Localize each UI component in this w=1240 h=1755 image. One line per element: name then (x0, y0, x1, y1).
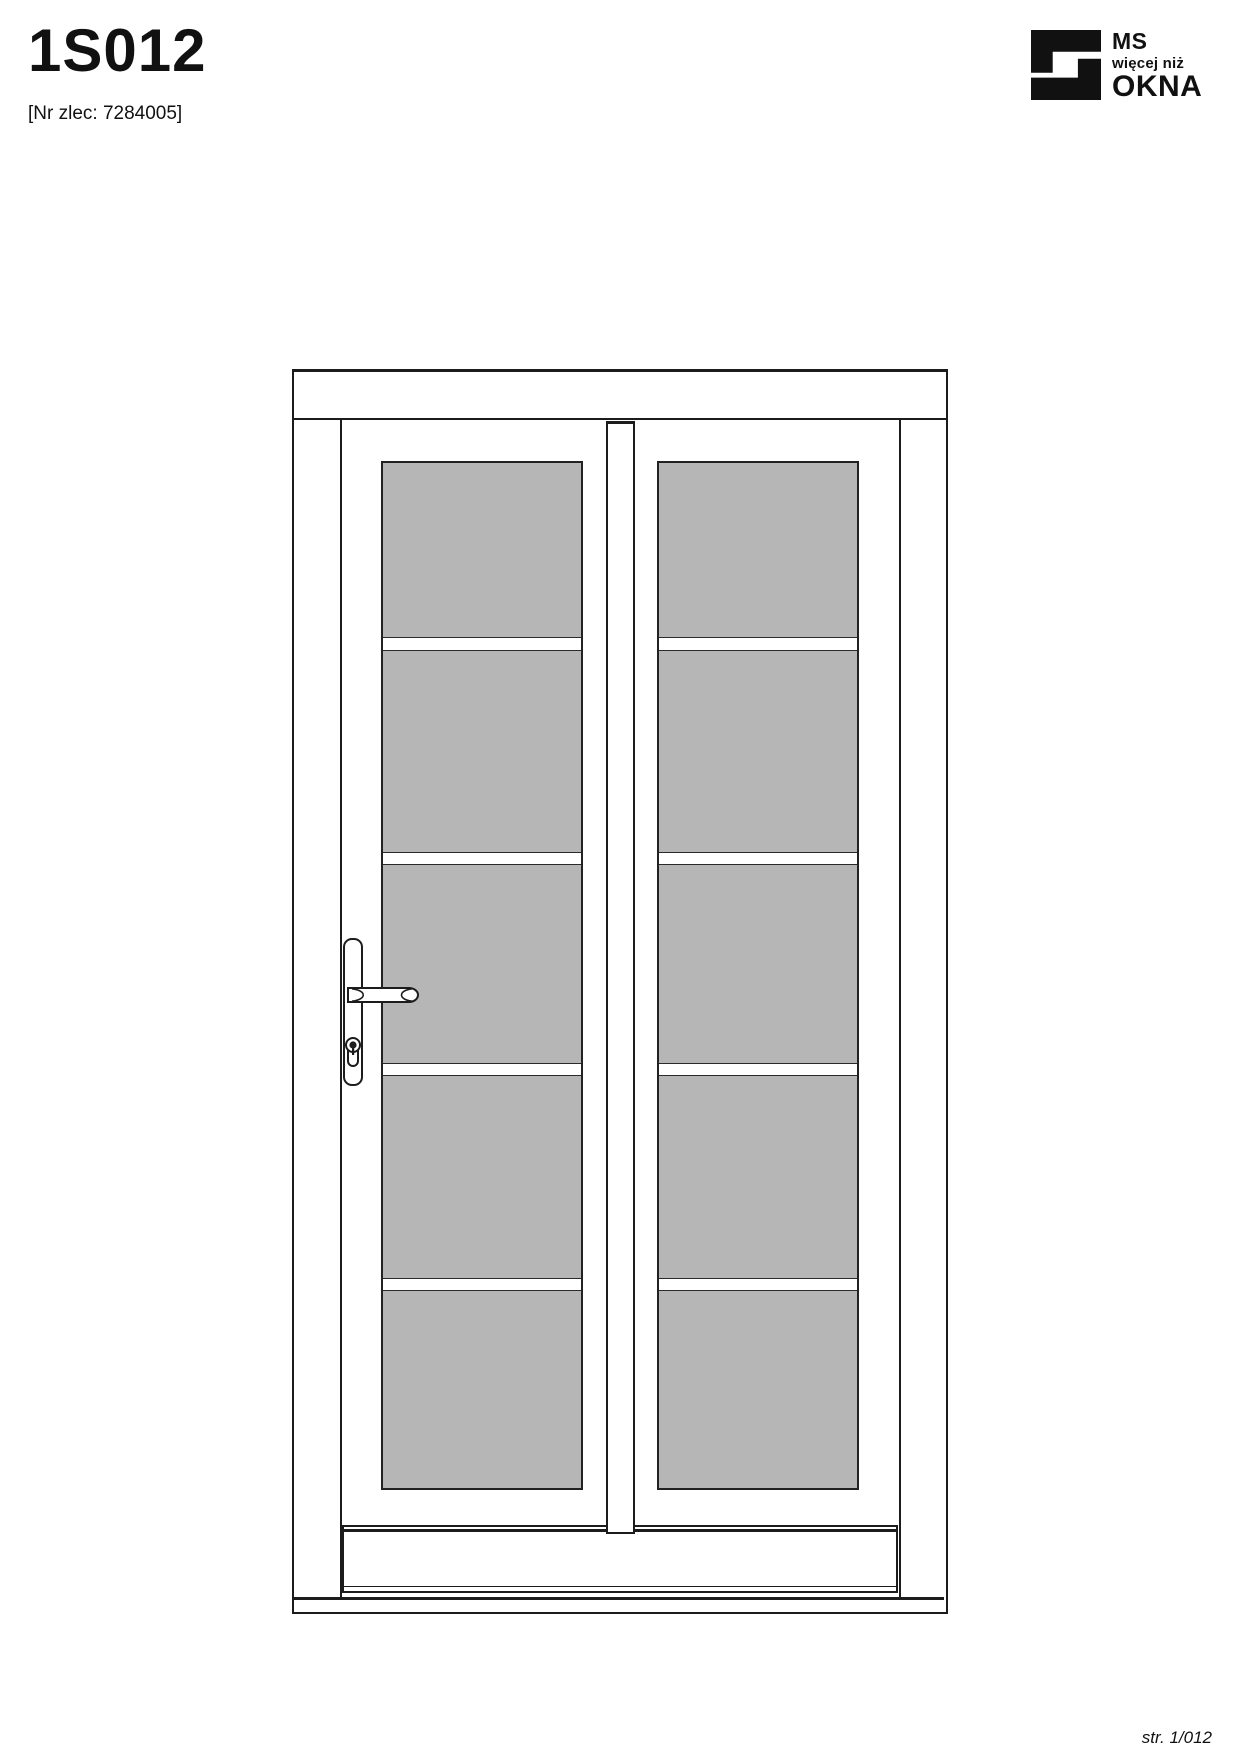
page-number: str. 1/012 (1142, 1728, 1212, 1748)
glass-panel (659, 1075, 857, 1279)
frame-head-line (292, 418, 946, 420)
door-handle-icon (338, 932, 428, 1097)
frame-jamb-right-line (899, 419, 901, 1600)
glass-panel (659, 463, 857, 638)
glass-panel (383, 650, 581, 853)
central-astragal (606, 421, 635, 1534)
glass-panel (659, 1290, 857, 1489)
right-leaf-glazing (657, 461, 859, 1490)
frame-bottom-band-line (294, 1597, 944, 1600)
door-technical-drawing (0, 0, 1240, 1755)
glass-panel (383, 1290, 581, 1489)
door-threshold (342, 1525, 898, 1593)
glass-panel (383, 1075, 581, 1279)
threshold-bottom-inner-line (344, 1586, 896, 1587)
glass-panel (659, 864, 857, 1064)
glass-panel (383, 463, 581, 638)
glass-panel (659, 650, 857, 853)
